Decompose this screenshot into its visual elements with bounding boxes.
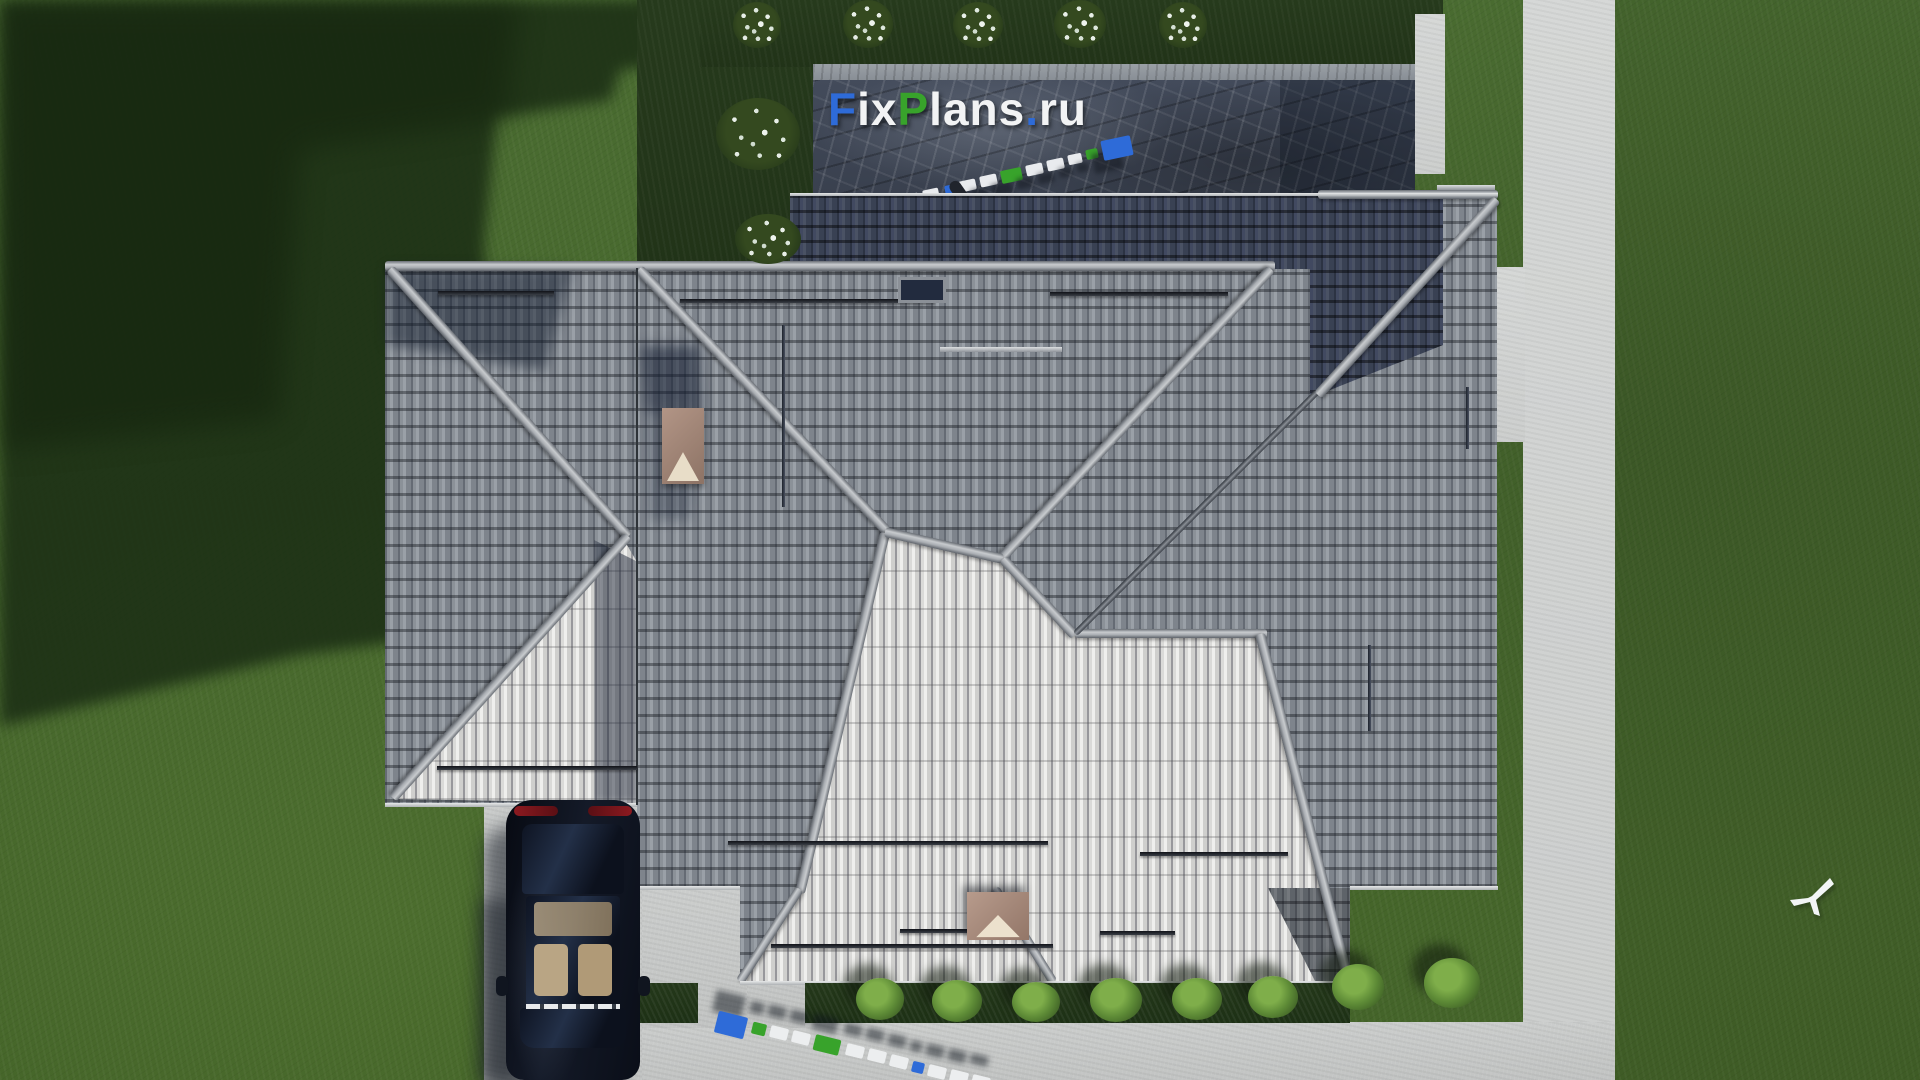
car-front-seat-right: [578, 944, 612, 996]
chimney-main: [662, 408, 704, 484]
eave-rightwing: [1350, 886, 1498, 890]
snow-guard: [1140, 852, 1288, 856]
flower-bush: [953, 2, 1003, 48]
car-rear-seats: [534, 902, 612, 936]
snow-guard: [728, 841, 1048, 845]
flower-bush: [1159, 2, 1207, 48]
shrub: [1248, 976, 1298, 1018]
car-windshield: [520, 1008, 626, 1048]
shrub: [1090, 978, 1142, 1022]
shrub-lawn: [1424, 958, 1480, 1008]
roof-junction-line: [636, 268, 638, 805]
car-body: [506, 800, 640, 1080]
car-taillight-left: [514, 806, 558, 816]
flower-bush: [843, 0, 893, 48]
snow-guard: [1100, 931, 1175, 935]
car-mirror-right: [638, 976, 650, 996]
snow-guard: [1050, 292, 1228, 296]
shrub-lawn: [1332, 964, 1384, 1010]
snow-guard: [1437, 185, 1495, 190]
ridge-main-top: [385, 261, 1275, 271]
snow-guard: [940, 347, 1062, 352]
flying-bird: [1786, 876, 1838, 920]
car-mirror-left: [496, 976, 508, 996]
shrub: [1172, 978, 1222, 1020]
snow-guard: [771, 944, 1053, 948]
shrub: [932, 980, 982, 1022]
shrub: [856, 978, 904, 1020]
flower-bush: [1054, 0, 1106, 48]
chimney-entrance: [967, 892, 1029, 940]
snow-guard: [438, 291, 554, 295]
aerial-house-render: FixPlans.ru: [0, 0, 1920, 1080]
eave-north: [790, 193, 1498, 196]
snow-guard: [680, 299, 935, 303]
snow-guard: [437, 766, 637, 770]
flower-bush: [733, 2, 781, 48]
chimney-entrance-cap: [967, 892, 1029, 940]
antenna-rod: [1368, 645, 1371, 731]
eave-forecourt: [637, 886, 740, 890]
flower-bush-small: [735, 214, 801, 264]
ridge-east: [1075, 629, 1267, 638]
shrub: [1012, 982, 1060, 1022]
roof-hatch: [898, 277, 946, 303]
car-roof-glass: [526, 896, 620, 1006]
antenna-rod: [782, 325, 785, 507]
chimney-main-cap: [662, 408, 704, 484]
car-cowl-trim: [526, 1004, 620, 1009]
antenna-rod: [1466, 387, 1469, 449]
car-taillight-right: [588, 806, 632, 816]
tree-shadow-on-roof: [0, 0, 1920, 1080]
car-rear-window: [522, 824, 624, 894]
flower-bush-large: [716, 98, 800, 170]
car-front-seat-left: [534, 944, 568, 996]
